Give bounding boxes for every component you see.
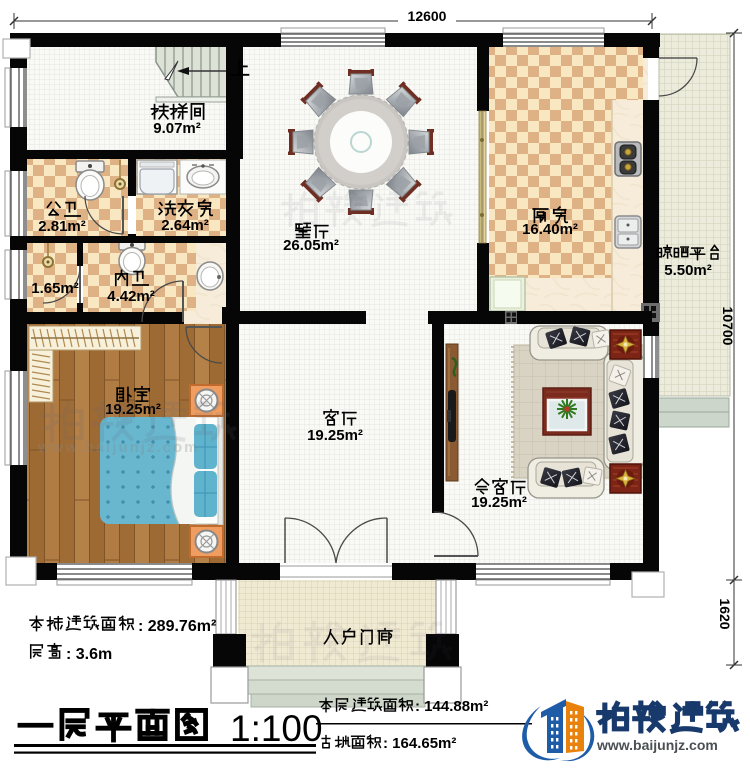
svg-text:: 164.65m²: : 164.65m² (383, 735, 456, 752)
svg-text:12600: 12600 (408, 8, 447, 24)
svg-text:5.50m²: 5.50m² (664, 262, 712, 279)
svg-text:www.baijunjz.com: www.baijunjz.com (596, 737, 718, 753)
svg-text:2.64m²: 2.64m² (161, 217, 209, 234)
svg-text:: 289.76m²: : 289.76m² (138, 618, 216, 635)
svg-text:: 3.6m: : 3.6m (66, 646, 112, 663)
svg-text:: 144.88m²: : 144.88m² (415, 698, 488, 715)
svg-text:16.40m²: 16.40m² (522, 221, 578, 238)
svg-text:10700: 10700 (720, 307, 736, 346)
svg-text:19.25m²: 19.25m² (471, 494, 527, 511)
svg-text:4.42m²: 4.42m² (107, 288, 155, 305)
svg-text:1.65m²: 1.65m² (31, 280, 79, 297)
svg-text:1:100: 1:100 (230, 708, 323, 749)
svg-text:19.25m²: 19.25m² (307, 427, 363, 444)
svg-text:1620: 1620 (717, 598, 733, 629)
svg-text:26.05m²: 26.05m² (283, 237, 339, 254)
svg-text:www.baijunjz.com: www.baijunjz.com (37, 439, 199, 456)
svg-text:2.81m²: 2.81m² (38, 218, 86, 235)
svg-text:9.07m²: 9.07m² (153, 120, 201, 137)
